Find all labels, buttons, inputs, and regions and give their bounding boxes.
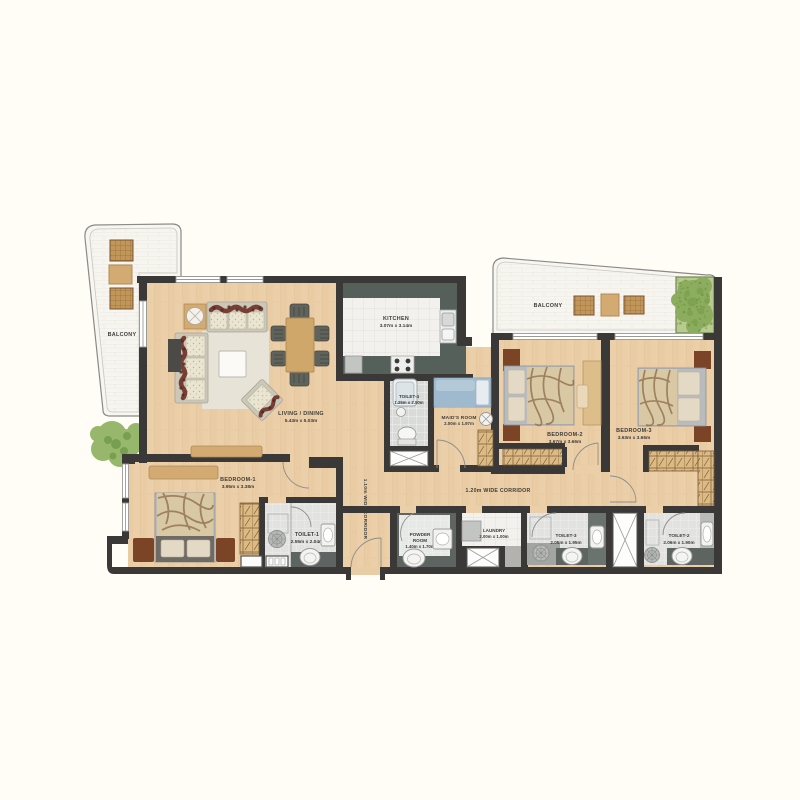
svg-text:POWDER: POWDER xyxy=(410,532,431,537)
svg-text:TOILET-4: TOILET-4 xyxy=(399,394,420,399)
svg-text:1.40m x 1.70m: 1.40m x 1.70m xyxy=(405,544,434,549)
svg-text:3.95m x 3.38m: 3.95m x 3.38m xyxy=(222,484,255,490)
svg-text:ROOM: ROOM xyxy=(413,538,427,543)
svg-text:1.20m WIDE CORRIDOR: 1.20m WIDE CORRIDOR xyxy=(465,488,530,494)
svg-text:BALCONY: BALCONY xyxy=(108,332,137,338)
svg-text:BEDROOM-1: BEDROOM-1 xyxy=(220,477,256,483)
svg-text:BEDROOM-2: BEDROOM-2 xyxy=(547,432,583,438)
svg-text:2.05m x 1.95m: 2.05m x 1.95m xyxy=(550,540,581,545)
svg-text:TOILET-2: TOILET-2 xyxy=(669,533,690,539)
svg-text:2.00m x 1.97m: 2.00m x 1.97m xyxy=(444,421,474,426)
svg-text:KITCHEN: KITCHEN xyxy=(383,316,409,322)
svg-text:1.25m x 2.50m: 1.25m x 2.50m xyxy=(394,400,423,405)
svg-text:TOILET-1: TOILET-1 xyxy=(295,532,319,538)
svg-text:3.07m x 3.14m: 3.07m x 3.14m xyxy=(380,323,413,329)
svg-text:2.55m x 2.04m: 2.55m x 2.04m xyxy=(291,539,324,545)
svg-text:BALCONY: BALCONY xyxy=(534,303,563,309)
svg-text:BEDROOM-3: BEDROOM-3 xyxy=(616,428,652,434)
svg-text:3.63m x 3.66m: 3.63m x 3.66m xyxy=(618,435,651,441)
svg-text:2.00m x 1.00m: 2.00m x 1.00m xyxy=(479,534,508,539)
svg-text:2.06m x 1.90m: 2.06m x 1.90m xyxy=(663,540,694,545)
svg-text:LIVING / DINING: LIVING / DINING xyxy=(278,411,324,417)
svg-text:TOILET-3: TOILET-3 xyxy=(556,533,577,539)
svg-text:5.43m x 5.03m: 5.43m x 5.03m xyxy=(285,418,318,424)
svg-text:LAUNDRY: LAUNDRY xyxy=(483,528,505,533)
svg-text:1.10m WIDE CORRIDOR: 1.10m WIDE CORRIDOR xyxy=(362,479,368,540)
